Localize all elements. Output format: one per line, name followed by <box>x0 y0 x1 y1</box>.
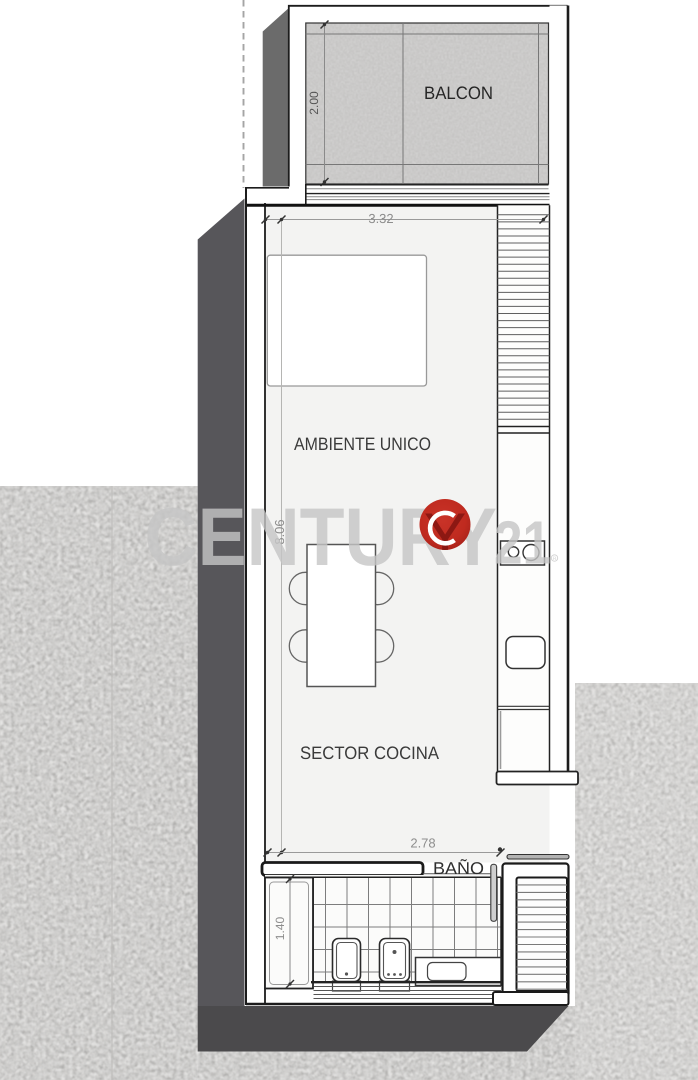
svg-text:R: R <box>553 556 557 562</box>
svg-text:BALCON: BALCON <box>424 83 493 103</box>
svg-text:1.40: 1.40 <box>273 916 287 940</box>
svg-text:SECTOR COCINA: SECTOR COCINA <box>300 743 439 763</box>
svg-text:2.00: 2.00 <box>307 91 321 115</box>
svg-text:21: 21 <box>494 509 551 577</box>
svg-text:2.78: 2.78 <box>410 836 435 851</box>
svg-text:AMBIENTE UNICO: AMBIENTE UNICO <box>294 434 431 454</box>
svg-text:3.32: 3.32 <box>368 211 393 226</box>
